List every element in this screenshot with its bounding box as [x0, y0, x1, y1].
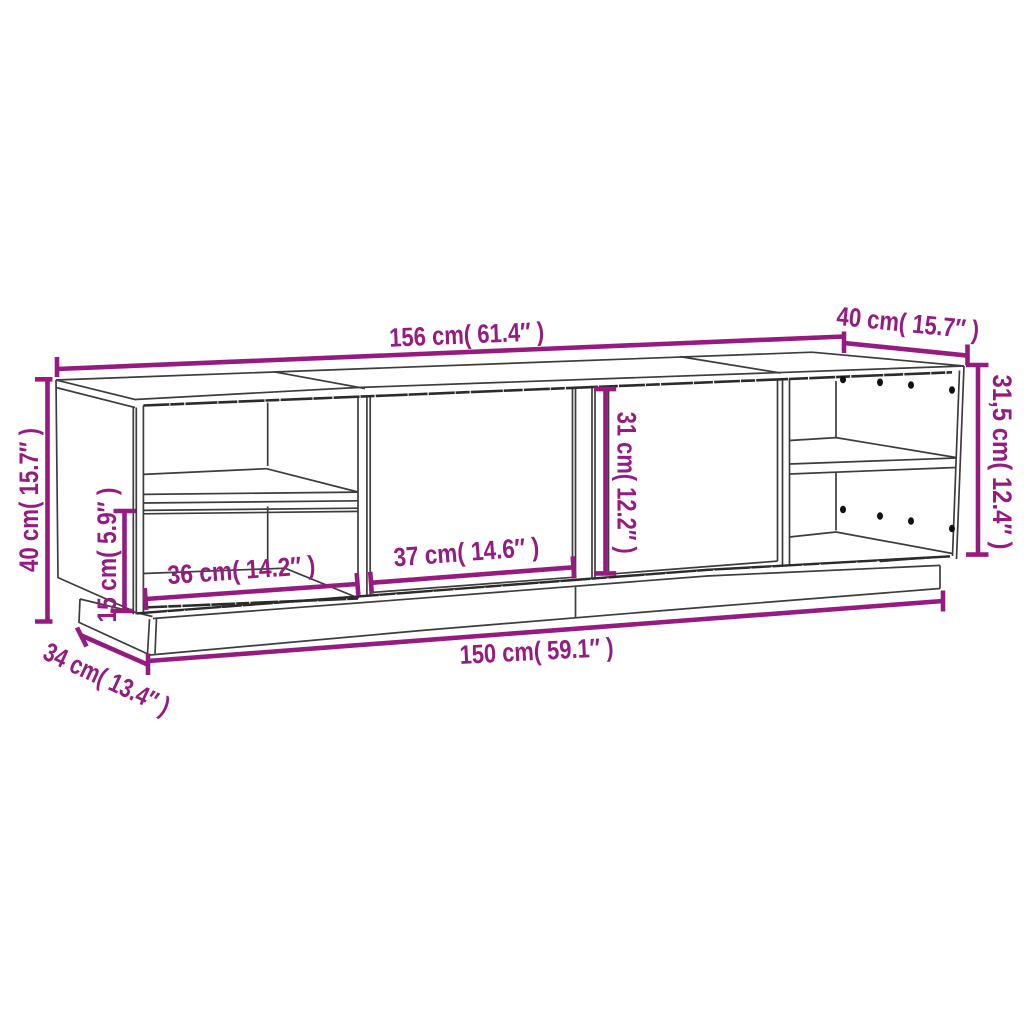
svg-text:15 cm( 5.9″ ): 15 cm( 5.9″ ) — [92, 488, 122, 623]
svg-text:31,5 cm( 12.4″ ): 31,5 cm( 12.4″ ) — [987, 375, 1017, 550]
svg-text:40 cm( 15.7″ ): 40 cm( 15.7″ ) — [14, 428, 44, 572]
svg-text:31 cm( 12.2″ ): 31 cm( 12.2″ ) — [612, 412, 642, 554]
